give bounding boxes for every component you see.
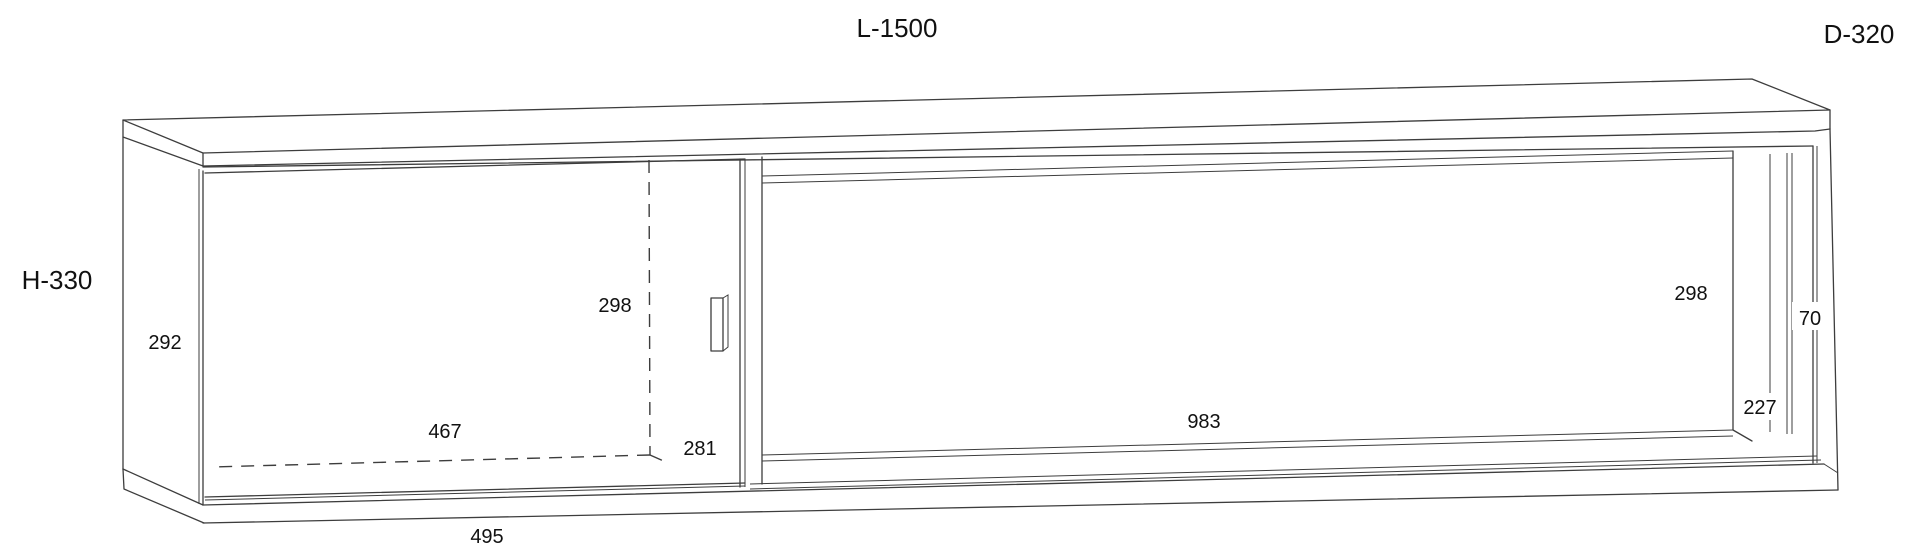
dim-right-inner-depth: 227 <box>1743 397 1776 419</box>
dim-overall-length: L-1500 <box>857 13 938 43</box>
right-compartment-interior <box>762 129 1838 490</box>
door-handle <box>711 295 728 351</box>
technical-drawing-canvas: L-1500 D-320 H-330 292 298 467 281 495 9… <box>0 0 1920 555</box>
dim-door-outer-width: 495 <box>470 526 503 548</box>
dim-overall-depth: D-320 <box>1824 19 1895 49</box>
dimension-labels: L-1500 D-320 H-330 292 298 467 281 495 9… <box>22 13 1895 548</box>
dim-door-bottom-width: 281 <box>683 438 716 460</box>
dim-overall-height: H-330 <box>22 265 93 295</box>
dim-right-edge-clearance: 70 <box>1799 308 1821 330</box>
dim-door-interior-height: 298 <box>598 295 631 317</box>
dim-door-interior-width: 467 <box>428 421 461 443</box>
dim-right-opening-height: 298 <box>1674 283 1707 305</box>
cabinet-dimension-drawing: L-1500 D-320 H-330 292 298 467 281 495 9… <box>0 0 1920 555</box>
dim-left-side-height: 292 <box>148 332 181 354</box>
top-panel <box>123 79 1830 166</box>
dim-right-opening-width: 983 <box>1187 411 1220 433</box>
sliding-door-left <box>205 159 745 500</box>
bottom-plinth <box>123 456 1838 523</box>
